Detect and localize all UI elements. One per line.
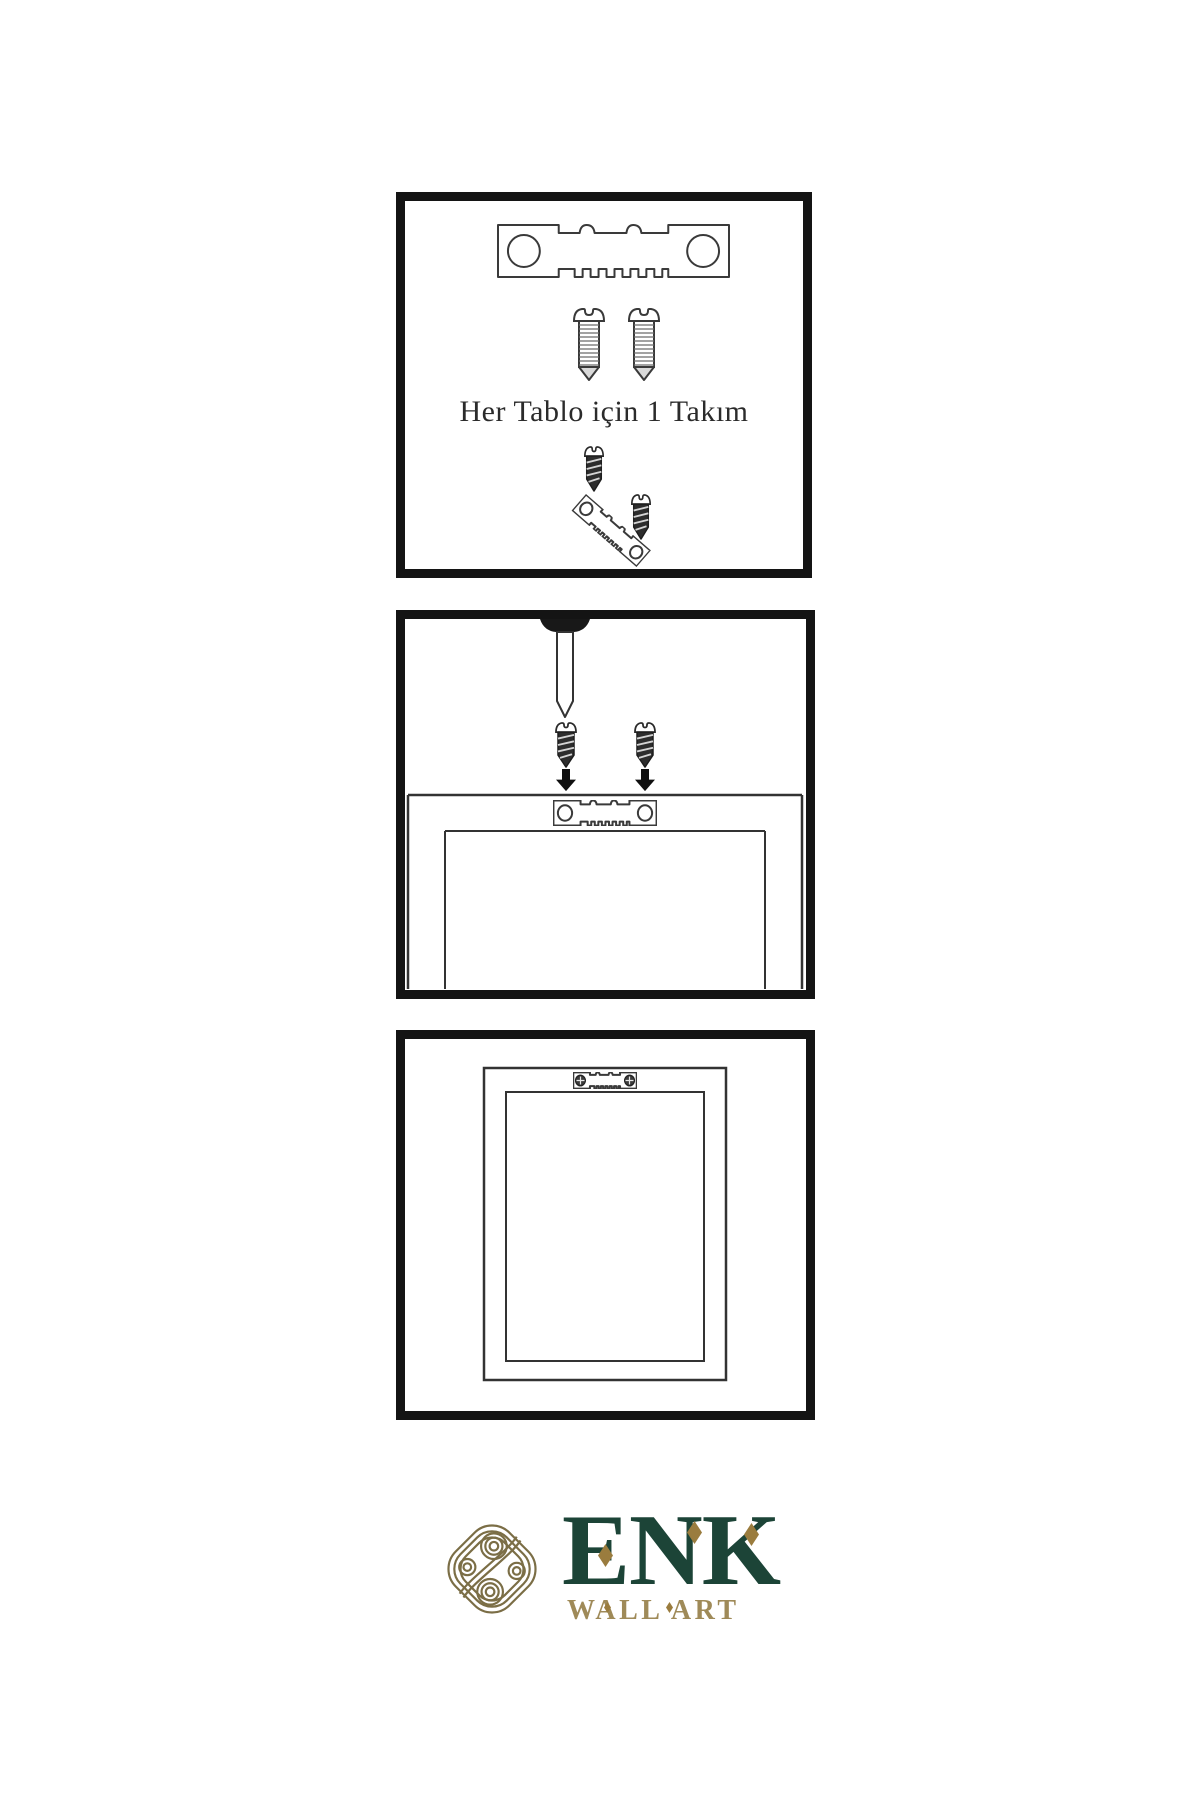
step-1-artwork [405, 201, 803, 567]
screw-icon [635, 723, 655, 767]
down-arrow-icon [635, 769, 655, 791]
brand-tagline: WALL ART [567, 1596, 740, 1626]
screw-icon [632, 495, 650, 539]
brand-name: ENK [562, 1500, 780, 1602]
down-arrow-icon [556, 769, 576, 791]
screw-icon [574, 309, 604, 380]
wall-nail-icon [540, 619, 590, 717]
instruction-sheet: Her Tablo için 1 Takım [0, 0, 1200, 1800]
screw-icon [585, 447, 603, 491]
kit-note-text: Her Tablo için 1 Takım [406, 392, 802, 432]
screw-icon [629, 309, 659, 380]
knot-logo-icon [435, 1503, 549, 1635]
step-3-artwork [405, 1039, 806, 1411]
step-2-artwork [405, 619, 806, 990]
sawtooth-hanger-icon [498, 225, 729, 277]
frame-back-icon [484, 1068, 726, 1380]
screw-icon [556, 723, 576, 767]
sawtooth-hanger-icon [553, 800, 656, 825]
